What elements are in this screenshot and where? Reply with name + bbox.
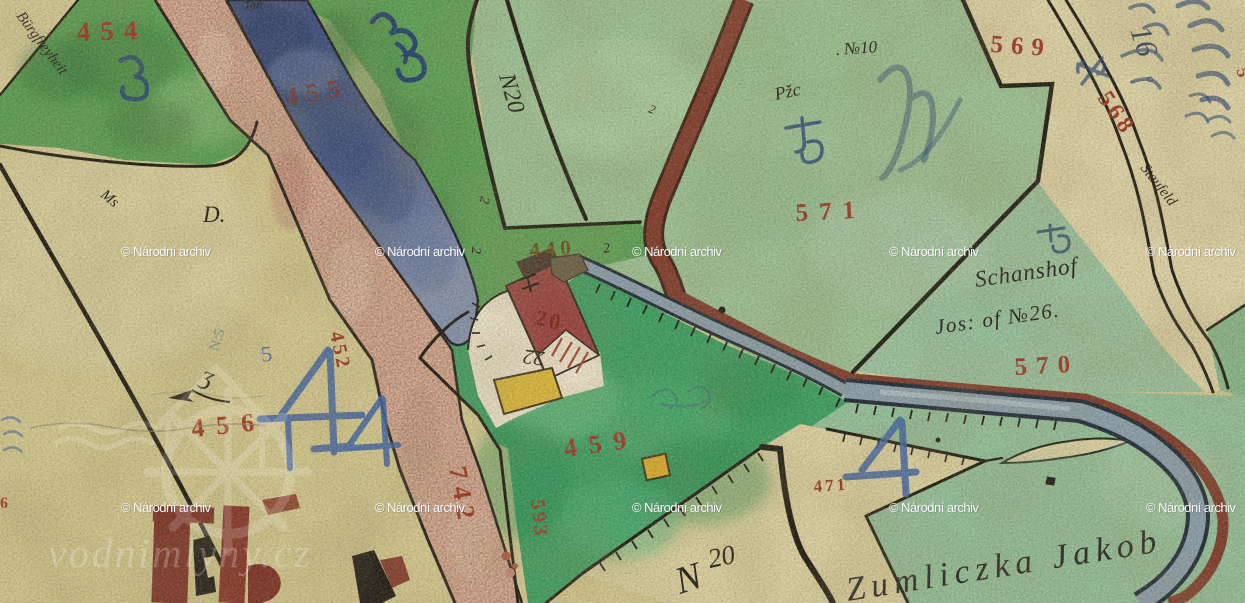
svg-text:© Národní archiv: © Národní archiv [632,244,723,259]
svg-text:© Národní archiv: © Národní archiv [375,244,466,259]
svg-text:© Národní archiv: © Národní archiv [889,244,980,259]
svg-text:© Národní archiv: © Národní archiv [1146,244,1237,259]
svg-text:© Národní archiv: © Národní archiv [121,244,212,259]
svg-text:© Národní archiv: © Národní archiv [375,500,466,515]
svg-text:© Národní archiv: © Národní archiv [632,500,723,515]
svg-text:© Národní archiv: © Národní archiv [1146,500,1237,515]
svg-text:© Národní archiv: © Národní archiv [121,500,212,515]
svg-text:© Národní archiv: © Národní archiv [889,500,980,515]
